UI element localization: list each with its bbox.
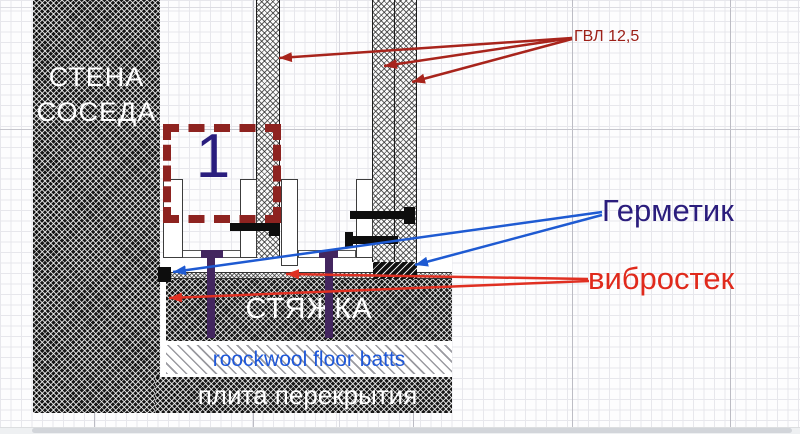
scrollbar-thumb[interactable] bbox=[32, 428, 792, 433]
fastener-1 bbox=[230, 223, 272, 231]
fastener-3-head bbox=[345, 232, 353, 248]
anchor-pin-1-head bbox=[201, 250, 223, 258]
fastener-3 bbox=[352, 236, 398, 244]
anchor-pin-1 bbox=[207, 258, 215, 338]
neighbor-wall-label-line2: СОСЕДА bbox=[33, 95, 160, 130]
neighbor-wall-label-line1: СТЕНА bbox=[33, 60, 160, 95]
fastener-2 bbox=[350, 211, 407, 219]
grid-major-line bbox=[572, 0, 573, 427]
anchor-pin-2 bbox=[325, 258, 333, 338]
gvl-sheet-2 bbox=[372, 0, 395, 262]
gvl-label: ГВЛ 12,5 bbox=[574, 28, 639, 46]
layer-gap bbox=[166, 374, 452, 377]
floor-slab-label: плита перекрытия bbox=[163, 380, 452, 411]
construction-detail-drawing: СТЕНА СОСЕДА плита перекрытия roockwool … bbox=[0, 0, 800, 434]
rockwool-label: roockwool floor batts bbox=[166, 348, 452, 372]
sealant-block bbox=[158, 267, 171, 282]
vibrostek-label: вибростек bbox=[588, 261, 734, 297]
fastener-2-head bbox=[404, 207, 415, 224]
callout-number: 1 bbox=[191, 126, 235, 188]
sealant-label: Герметик bbox=[602, 193, 734, 229]
neighbor-wall-label: СТЕНА СОСЕДА bbox=[33, 60, 160, 130]
stud-profile-3 bbox=[281, 179, 298, 266]
vibro-pad bbox=[373, 262, 417, 279]
anchor-pin-2-head bbox=[319, 250, 338, 258]
